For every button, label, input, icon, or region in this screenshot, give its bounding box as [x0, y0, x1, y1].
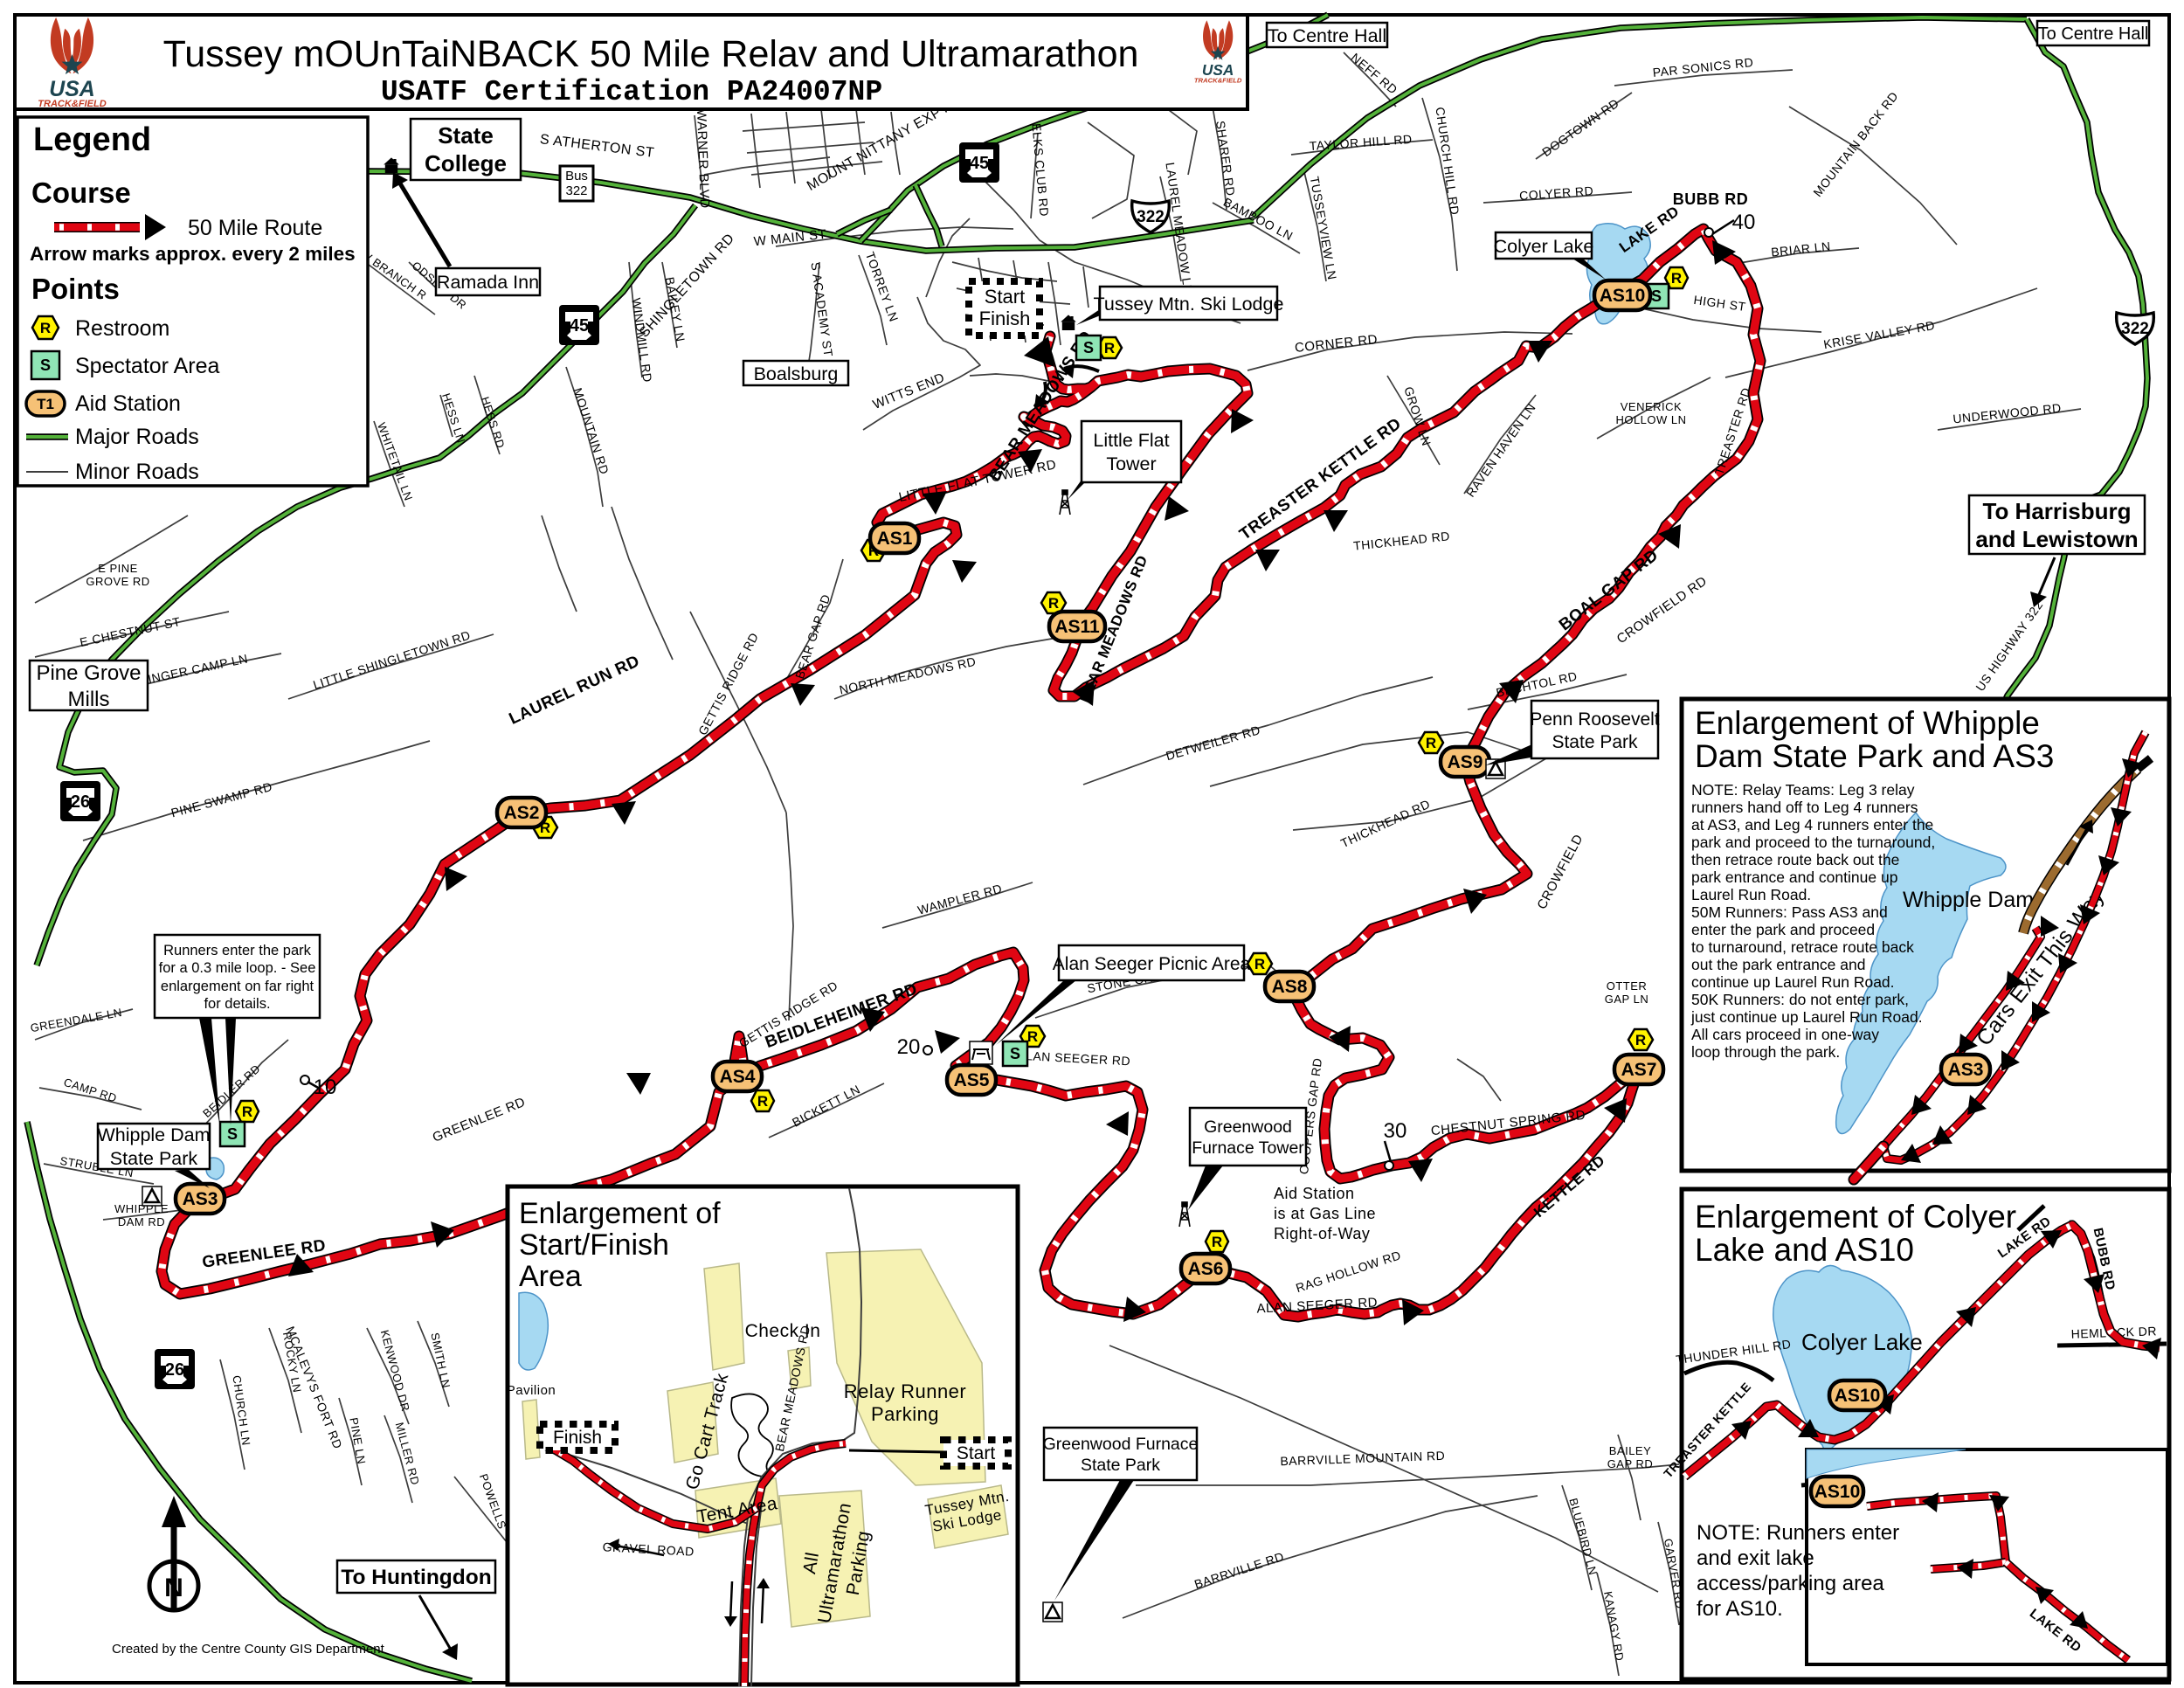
svg-text:BAILEY: BAILEY — [1609, 1444, 1652, 1457]
svg-text:S: S — [1010, 1045, 1020, 1062]
svg-text:Enlargement of Colyer: Enlargement of Colyer — [1695, 1199, 2016, 1235]
svg-text:45: 45 — [570, 316, 589, 336]
svg-text:50K Runners: do not enter park: 50K Runners: do not enter park, — [1691, 991, 1909, 1008]
svg-text:GAP RD: GAP RD — [1607, 1457, 1654, 1470]
svg-text:All cars proceed in one-way: All cars proceed in one-way — [1691, 1026, 1879, 1043]
svg-text:park and proceed to the turnar: park and proceed to the turnaround, — [1691, 834, 1935, 851]
svg-text:All: All — [799, 1551, 823, 1575]
svg-text:50M Runners: Pass AS3 and: 50M Runners: Pass AS3 and — [1691, 903, 1888, 921]
svg-text:BUBB RD: BUBB RD — [1673, 190, 1749, 208]
svg-text:TRACK&FIELD: TRACK&FIELD — [38, 99, 106, 109]
svg-text:NOTE: Relay Teams: Leg 3 relay: NOTE: Relay Teams: Leg 3 relay — [1691, 781, 1915, 799]
svg-text:R: R — [1104, 340, 1115, 356]
svg-text:To Huntingdon: To Huntingdon — [341, 1566, 491, 1589]
svg-text:50 Mile Route: 50 Mile Route — [188, 216, 322, 240]
svg-text:26: 26 — [71, 792, 90, 812]
svg-text:Penn Roosevelt: Penn Roosevelt — [1530, 709, 1659, 730]
svg-text:USATF Certification PA24007NP: USATF Certification PA24007NP — [381, 76, 882, 108]
svg-text:AS9: AS9 — [1448, 752, 1483, 772]
svg-text:Greenwood: Greenwood — [1204, 1117, 1292, 1137]
svg-text:park entrance and continue up: park entrance and continue up — [1691, 868, 1897, 886]
svg-text:for a 0.3 mile loop. - See: for a 0.3 mile loop. - See — [159, 960, 316, 976]
svg-text:AS10: AS10 — [1814, 1482, 1861, 1502]
svg-text:runners hand off to Leg 4 runn: runners hand off to Leg 4 runners — [1691, 799, 1918, 816]
svg-text:S: S — [40, 356, 51, 374]
svg-text:Enlargement of: Enlargement of — [519, 1197, 721, 1230]
svg-text:College: College — [425, 150, 507, 176]
svg-text:Tussey mOUnTaiNBACK 50 Mile Re: Tussey mOUnTaiNBACK 50 Mile Relav and Ul… — [163, 33, 1139, 75]
svg-text:Legend: Legend — [33, 121, 151, 158]
svg-text:Furnace Tower: Furnace Tower — [1192, 1138, 1304, 1158]
svg-text:To Harrisburg: To Harrisburg — [1983, 498, 2132, 524]
svg-text:Parking: Parking — [871, 1403, 939, 1425]
svg-text:is at Gas Line: is at Gas Line — [1274, 1205, 1376, 1222]
svg-text:State Park: State Park — [1552, 732, 1638, 752]
svg-text:just continue up Laurel Run Ro: just continue up Laurel Run Road. — [1690, 1008, 1923, 1026]
svg-text:Created by the Centre County G: Created by the Centre County GIS Departm… — [112, 1642, 385, 1657]
svg-text:Finish: Finish — [553, 1428, 602, 1448]
svg-text:Boalsburg: Boalsburg — [754, 363, 839, 384]
svg-text:AS10: AS10 — [1600, 286, 1646, 306]
svg-text:Start: Start — [957, 1443, 996, 1463]
svg-text:To Centre Hall: To Centre Hall — [2038, 24, 2149, 44]
svg-text:R: R — [757, 1093, 768, 1110]
svg-text:45: 45 — [970, 154, 989, 173]
svg-text:Little Flat: Little Flat — [1093, 430, 1169, 451]
svg-text:Points: Points — [31, 273, 120, 305]
svg-text:AS7: AS7 — [1621, 1060, 1657, 1080]
svg-text:TRACK&FIELD: TRACK&FIELD — [1194, 76, 1242, 84]
svg-text:Whipple Dam: Whipple Dam — [97, 1124, 210, 1145]
svg-text:Finish: Finish — [979, 308, 1031, 329]
svg-text:State Park: State Park — [110, 1148, 198, 1169]
svg-text:VENERICK: VENERICK — [1621, 400, 1682, 413]
svg-text:R: R — [1027, 1028, 1038, 1045]
svg-text:Aid Station: Aid Station — [1274, 1185, 1355, 1202]
svg-text:To Centre Hall: To Centre Hall — [1268, 25, 1386, 46]
svg-text:continue up Laurel Run Road.: continue up Laurel Run Road. — [1691, 973, 1895, 991]
svg-text:OTTER: OTTER — [1607, 979, 1648, 993]
svg-text:NOTE: Runners enter: NOTE: Runners enter — [1697, 1521, 1899, 1545]
svg-text:Spectator Area: Spectator Area — [75, 354, 219, 378]
svg-text:AS5: AS5 — [954, 1070, 990, 1090]
svg-text:to turnaround, retrace route b: to turnaround, retrace route back — [1691, 938, 1914, 956]
svg-text:AS3: AS3 — [183, 1189, 218, 1209]
svg-text:Pavilion: Pavilion — [507, 1383, 556, 1398]
svg-text:R: R — [1635, 1032, 1646, 1048]
svg-text:Runners enter the park: Runners enter the park — [163, 943, 312, 958]
svg-text:R: R — [1048, 595, 1059, 612]
svg-text:GROVE RD: GROVE RD — [86, 575, 149, 588]
svg-text:Whipple Dam: Whipple Dam — [1903, 888, 2034, 912]
svg-text:loop through the park.: loop through the park. — [1691, 1043, 1840, 1061]
svg-text:DAM RD: DAM RD — [118, 1215, 165, 1228]
svg-text:AS1: AS1 — [877, 529, 913, 549]
svg-text:R: R — [1671, 270, 1682, 287]
svg-text:AS4: AS4 — [720, 1067, 756, 1087]
svg-text:HOLLOW LN: HOLLOW LN — [1615, 413, 1686, 426]
svg-text:Area: Area — [519, 1260, 582, 1293]
svg-text:Tower: Tower — [1106, 453, 1156, 474]
svg-text:State Park: State Park — [1081, 1456, 1160, 1475]
svg-text:Relay Runner: Relay Runner — [844, 1380, 967, 1402]
svg-text:N: N — [164, 1574, 183, 1602]
svg-text:AS10: AS10 — [1835, 1386, 1881, 1406]
svg-text:for AS10.: for AS10. — [1697, 1597, 1783, 1621]
svg-text:Minor Roads: Minor Roads — [75, 460, 199, 484]
svg-text:and Lewistown: and Lewistown — [1975, 526, 2138, 552]
svg-text:Colyer Lake: Colyer Lake — [1801, 1329, 1923, 1355]
svg-text:and exit lake: and exit lake — [1697, 1546, 1814, 1570]
svg-text:Dam State Park and AS3: Dam State Park and AS3 — [1695, 738, 2054, 774]
svg-text:AS8: AS8 — [1272, 977, 1308, 997]
svg-text:Start: Start — [985, 286, 1025, 308]
svg-text:Laurel Run Road.: Laurel Run Road. — [1691, 886, 1811, 903]
svg-text:R: R — [1254, 956, 1265, 972]
svg-text:40: 40 — [1732, 211, 1756, 234]
svg-text:30: 30 — [1384, 1119, 1407, 1143]
svg-text:access/parking area: access/parking area — [1697, 1572, 1884, 1595]
svg-text:Bus: Bus — [565, 169, 588, 183]
svg-text:Ramada Inn: Ramada Inn — [437, 272, 539, 293]
svg-text:26: 26 — [165, 1360, 184, 1380]
svg-text:for details.: for details. — [204, 996, 270, 1012]
svg-text:enlargement on far right: enlargement on far right — [161, 979, 314, 994]
svg-text:AS3: AS3 — [1948, 1060, 1984, 1080]
svg-text:R: R — [1212, 1234, 1222, 1250]
svg-text:Lake and AS10: Lake and AS10 — [1695, 1232, 1914, 1268]
svg-text:Course: Course — [31, 176, 131, 209]
svg-text:R: R — [1426, 735, 1436, 751]
svg-text:AS11: AS11 — [1054, 617, 1100, 637]
svg-text:Right-of-Way: Right-of-Way — [1274, 1225, 1370, 1242]
svg-text:322: 322 — [565, 183, 587, 198]
svg-text:322: 322 — [1137, 208, 1165, 226]
svg-text:S: S — [1651, 287, 1662, 305]
svg-text:S: S — [227, 1125, 238, 1143]
svg-text:USA: USA — [49, 78, 94, 101]
svg-text:AS6: AS6 — [1188, 1259, 1224, 1279]
svg-text:State: State — [438, 122, 494, 149]
svg-text:20: 20 — [897, 1035, 921, 1059]
svg-text:R: R — [242, 1103, 252, 1120]
svg-text:Arrow marks approx. every 2 mi: Arrow marks approx. every 2 miles — [30, 243, 356, 265]
svg-text:Start/Finish: Start/Finish — [519, 1228, 669, 1262]
svg-text:GAP LN: GAP LN — [1605, 993, 1648, 1006]
svg-text:Restroom: Restroom — [75, 316, 169, 341]
svg-text:then retrace route back out th: then retrace route back out the — [1691, 851, 1899, 868]
svg-text:Enlargement of Whipple: Enlargement of Whipple — [1695, 705, 2040, 741]
svg-text:E PINE: E PINE — [98, 562, 138, 575]
svg-text:322: 322 — [2121, 320, 2149, 338]
svg-text:Aid Station: Aid Station — [75, 391, 181, 416]
svg-text:Alan Seeger Picnic Area: Alan Seeger Picnic Area — [1053, 954, 1251, 974]
svg-text:Major Roads: Major Roads — [75, 425, 199, 449]
svg-text:R: R — [40, 320, 51, 336]
svg-text:T1: T1 — [37, 396, 54, 412]
svg-text:Mills: Mills — [68, 688, 110, 711]
svg-text:enter the park and proceed: enter the park and proceed — [1691, 921, 1875, 938]
svg-text:AS2: AS2 — [504, 803, 540, 823]
svg-text:out the park entrance and: out the park entrance and — [1691, 956, 1865, 973]
svg-text:S: S — [1083, 339, 1094, 356]
svg-text:at AS3, and Leg 4 runners ente: at AS3, and Leg 4 runners enter the — [1691, 816, 1933, 834]
svg-text:Tussey Mtn. Ski Lodge: Tussey Mtn. Ski Lodge — [1094, 294, 1284, 315]
svg-text:Pine Grove: Pine Grove — [36, 661, 141, 685]
svg-text:Colyer Lake: Colyer Lake — [1494, 236, 1594, 257]
svg-text:Greenwood Furnace: Greenwood Furnace — [1043, 1435, 1199, 1454]
